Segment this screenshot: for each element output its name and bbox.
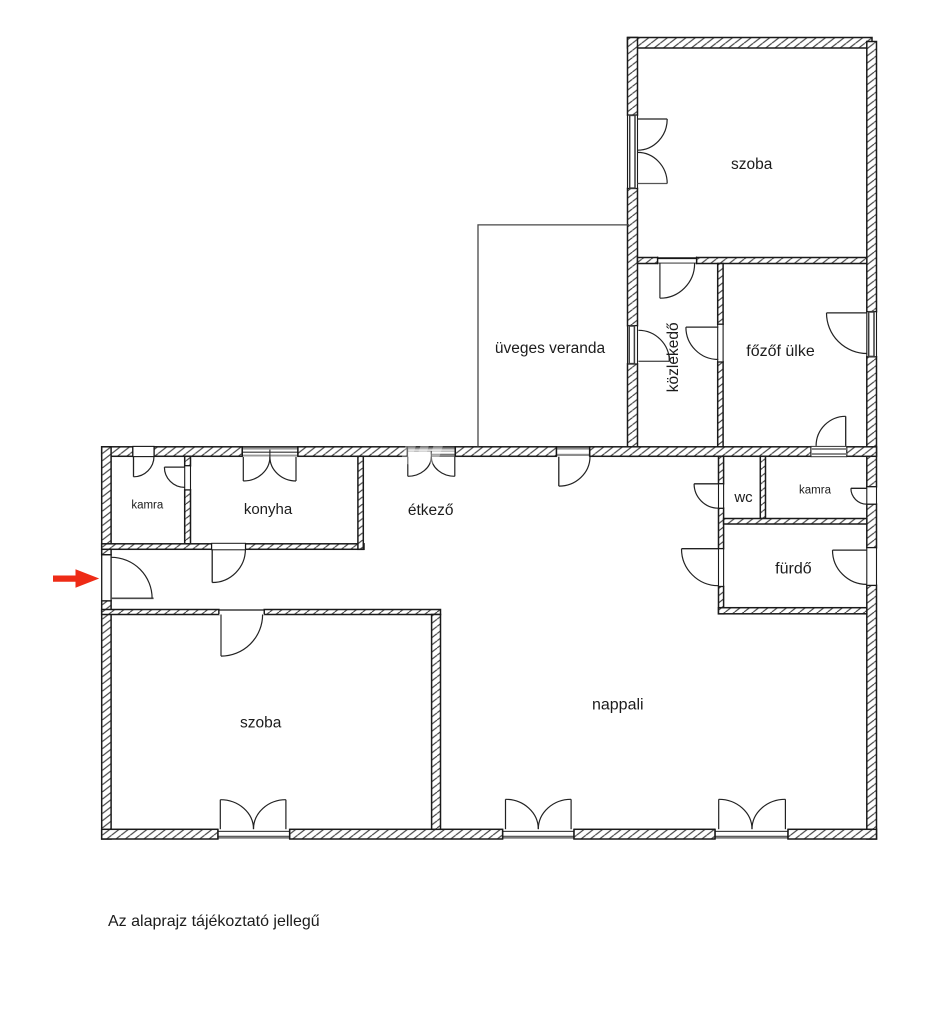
svg-text:szoba: szoba: [731, 156, 773, 173]
svg-text:főzőf ülke: főzőf ülke: [746, 343, 815, 360]
svg-text:kamra: kamra: [131, 500, 164, 512]
svg-text:konyha: konyha: [244, 501, 293, 518]
svg-text:étkező: étkező: [408, 502, 454, 519]
svg-text:kamra: kamra: [799, 485, 832, 497]
svg-text:szoba: szoba: [240, 715, 282, 732]
svg-text:fürdő: fürdő: [775, 561, 812, 578]
svg-text:nappali: nappali: [592, 696, 644, 713]
svg-text:üveges veranda: üveges veranda: [495, 340, 606, 357]
svg-text:közlekedő: közlekedő: [665, 322, 682, 392]
svg-text:wc: wc: [733, 489, 753, 506]
svg-text:Az alaprajz tájékoztató jelleg: Az alaprajz tájékoztató jellegű: [108, 913, 320, 930]
